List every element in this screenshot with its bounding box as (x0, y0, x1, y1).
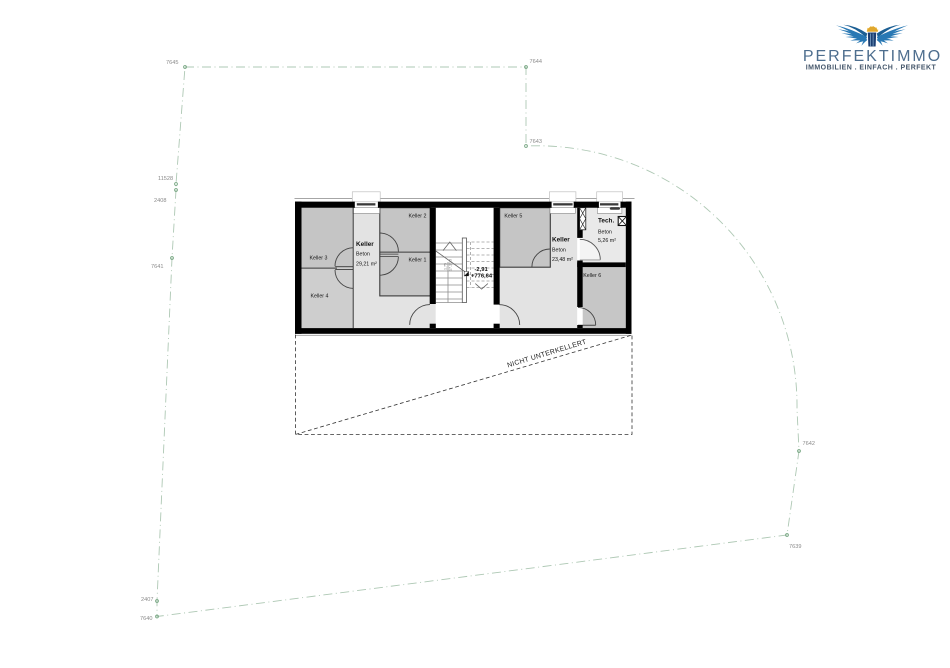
svg-text:23,48 m²: 23,48 m² (552, 257, 573, 263)
svg-text:Tech.: Tech. (598, 218, 614, 225)
svg-text:7639: 7639 (789, 544, 801, 550)
svg-text:7640: 7640 (140, 616, 152, 622)
svg-text:Keller 1: Keller 1 (409, 258, 427, 264)
svg-text:Keller: Keller (356, 241, 374, 248)
svg-text:5,26 m²: 5,26 m² (598, 238, 616, 244)
svg-text:7643: 7643 (530, 139, 542, 145)
svg-text:7644: 7644 (530, 59, 542, 65)
svg-text:7642: 7642 (803, 441, 815, 447)
svg-text:Beton: Beton (356, 252, 370, 258)
svg-text:Keller: Keller (552, 237, 570, 244)
svg-text:7641: 7641 (151, 264, 163, 270)
svg-text:-2,91: -2,91 (475, 267, 489, 273)
svg-text:PERFEKTIMMO: PERFEKTIMMO (803, 48, 942, 65)
svg-text:IMMOBILIEN . EINFACH . PERFEKT: IMMOBILIEN . EINFACH . PERFEKT (806, 65, 937, 72)
svg-text:+776,64: +776,64 (471, 273, 493, 279)
svg-text:Beton: Beton (552, 248, 566, 254)
svg-text:1,75: 1,75 (443, 263, 447, 270)
svg-text:Beton: Beton (598, 229, 612, 235)
svg-text:Keller 6: Keller 6 (583, 273, 601, 279)
svg-text:2407: 2407 (141, 597, 153, 603)
svg-text:Keller 4: Keller 4 (311, 293, 329, 299)
svg-text:2408: 2408 (154, 198, 166, 204)
svg-text:Keller 3: Keller 3 (310, 255, 328, 261)
svg-text:Keller 2: Keller 2 (409, 213, 427, 219)
svg-text:Keller 5: Keller 5 (504, 214, 522, 220)
svg-text:29,21 m²: 29,21 m² (356, 261, 377, 267)
svg-text:17,1/25: 17,1/25 (449, 259, 453, 271)
svg-text:7645: 7645 (166, 60, 178, 66)
svg-text:11528: 11528 (158, 176, 173, 182)
